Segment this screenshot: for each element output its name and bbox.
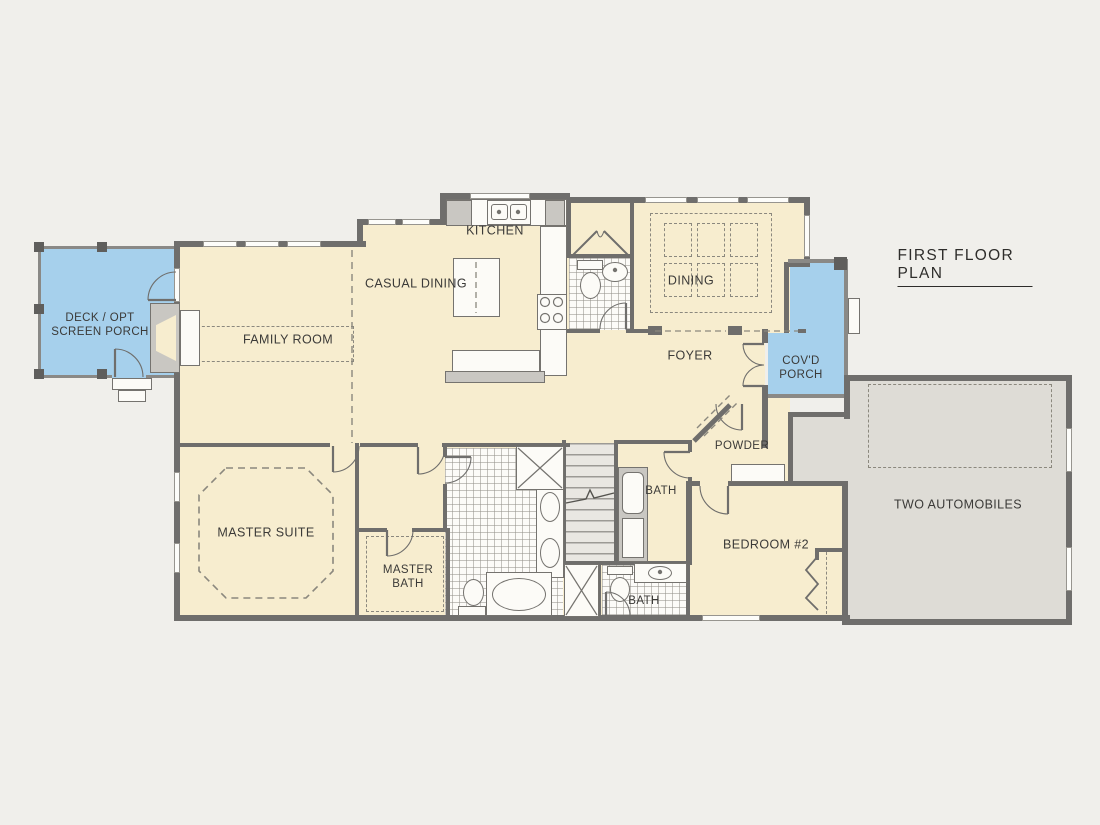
dining-label: DINING <box>668 274 714 289</box>
foyer-label: FOYER <box>667 349 712 364</box>
family-room-label: FAMILY ROOM <box>243 333 333 348</box>
master-bath-label: MASTER BATH <box>383 564 433 592</box>
bedroom-2-label: BEDROOM #2 <box>723 538 809 553</box>
bath-lower-label: BATH <box>628 595 659 609</box>
powder-label: POWDER <box>715 440 769 454</box>
master-suite-label: MASTER SUITE <box>217 526 314 541</box>
plan-title: FIRST FLOOR PLAN <box>898 247 1033 287</box>
covd-porch-label: COV'D PORCH <box>779 355 823 383</box>
deck-label: DECK / OPT SCREEN PORCH <box>51 312 148 340</box>
bath-upper-label: BATH <box>645 485 676 499</box>
floor-plan: FIRST FLOOR PLAN KITCHEN CASUAL DINING F… <box>0 0 1100 825</box>
label-layer: FIRST FLOOR PLAN KITCHEN CASUAL DINING F… <box>0 0 1100 825</box>
garage-label: TWO AUTOMOBILES <box>894 498 1022 513</box>
casual-dining-label: CASUAL DINING <box>365 277 467 292</box>
kitchen-label: KITCHEN <box>466 224 524 239</box>
